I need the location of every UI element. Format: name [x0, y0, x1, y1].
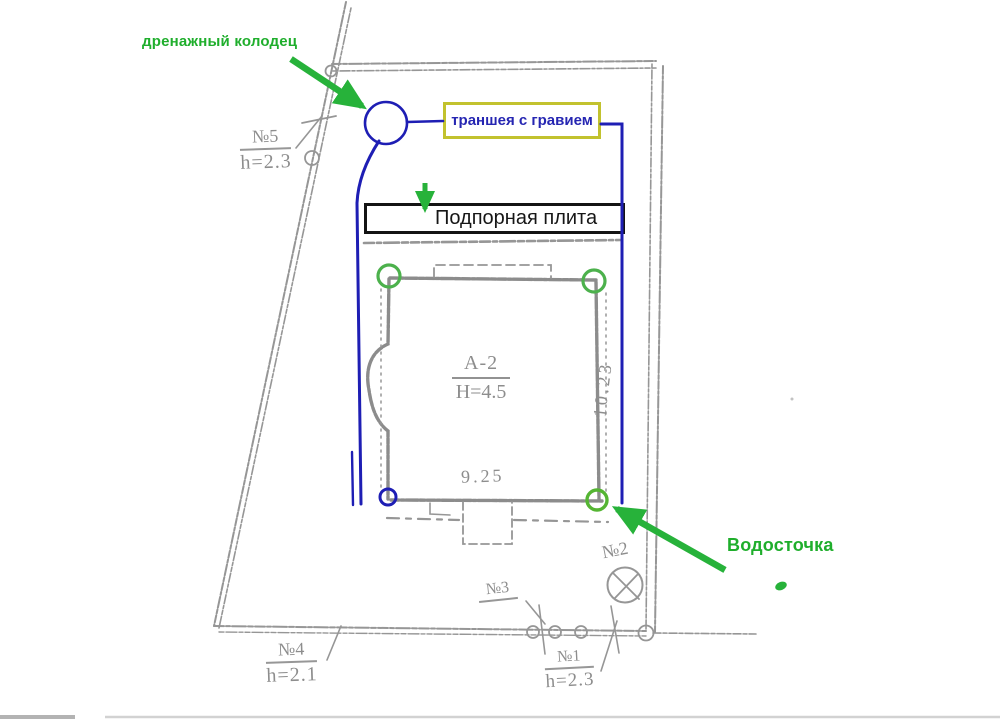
dimension-depth: 10.23 [587, 346, 618, 434]
building-label: А-2 Н=4.5 [452, 352, 510, 404]
survey-point3-label: №3 [477, 578, 518, 603]
point4-number: №4 [265, 638, 317, 664]
point5-height: h=2.3 [240, 149, 292, 175]
survey-point5-label: №5 h=2.3 [239, 125, 292, 175]
downspout-label: Водосточка [727, 535, 834, 556]
building-name: А-2 [452, 352, 510, 379]
labels-layer: дренажный колодец Водосточка траншея с г… [0, 0, 1000, 720]
gravel-trench-box: траншея с гравием [443, 102, 601, 139]
dimension-width: 9.25 [461, 465, 505, 488]
gravel-trench-label: траншея с гравием [451, 112, 593, 129]
drainage-well-label: дренажный колодец [142, 33, 297, 50]
retaining-plate-label: Подпорная плита [435, 207, 597, 230]
point4-height: h=2.1 [266, 662, 318, 688]
site-plan-canvas: дренажный колодец Водосточка траншея с г… [0, 0, 1000, 720]
point3-number: №3 [477, 578, 518, 603]
point1-number: №1 [544, 647, 594, 671]
building-height: Н=4.5 [452, 379, 510, 404]
retaining-plate-box: Подпорная плита [364, 203, 625, 234]
point5-number: №5 [239, 125, 291, 151]
survey-point1-label: №1 h=2.3 [544, 647, 595, 694]
point1-height: h=2.3 [545, 668, 595, 694]
survey-point2-label: №2 [600, 538, 630, 564]
survey-point4-label: №4 h=2.1 [265, 638, 318, 688]
